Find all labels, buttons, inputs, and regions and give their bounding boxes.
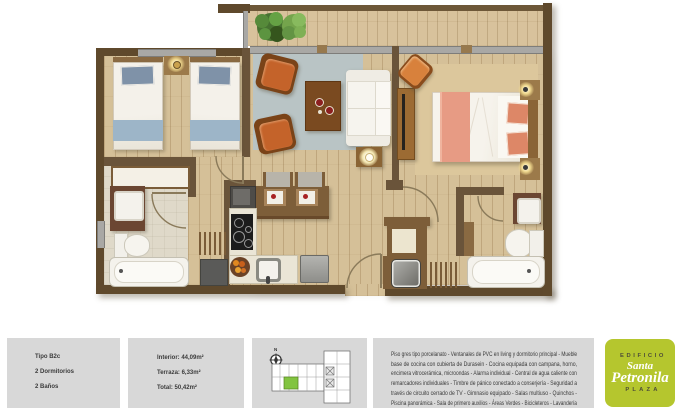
svg-text:N: N [274,347,277,352]
